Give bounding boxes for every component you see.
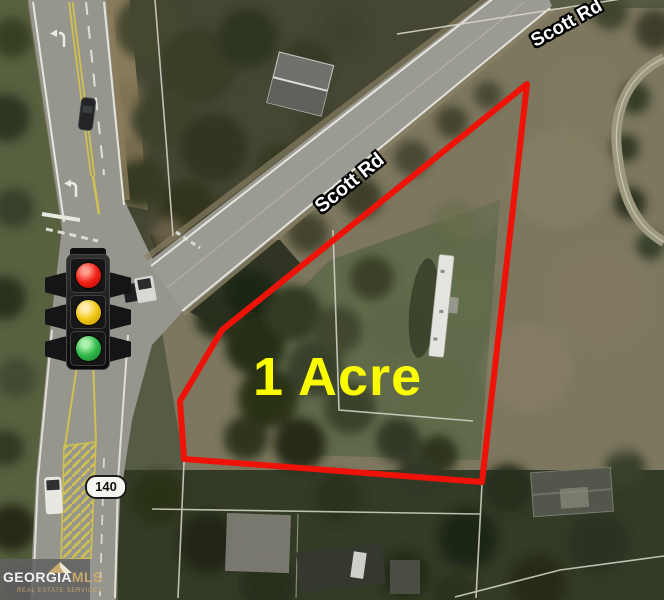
aerial-listing-image: Scott Rd Scott Rd 1 Acre 140 (0, 0, 664, 600)
traffic-light-module (70, 295, 106, 330)
traffic-light-icon (44, 246, 132, 374)
traffic-light-body (66, 254, 110, 370)
mls-brand-text: GEORGIAMLS (3, 569, 103, 585)
mls-tagline: REAL ESTATE SERVICES (17, 588, 102, 594)
traffic-light-visor (45, 272, 67, 298)
traffic-light-visor (45, 304, 67, 330)
brand-georgia: GEORGIA (3, 569, 72, 585)
traffic-light-visor (109, 336, 131, 362)
traffic-light-visor (109, 304, 131, 330)
georgia-mls-watermark: GEORGIAMLS REAL ESTATE SERVICES (0, 559, 90, 600)
route-140-shield: 140 (85, 475, 127, 499)
green-light-icon (75, 335, 102, 362)
acreage-label: 1 Acre (253, 346, 422, 408)
red-light-icon (75, 262, 102, 289)
traffic-light-module (70, 331, 106, 366)
traffic-light-visor (45, 336, 67, 362)
yellow-light-icon (75, 299, 102, 326)
traffic-light-visor (109, 272, 131, 298)
brand-mls: MLS (72, 569, 103, 585)
traffic-light-module (70, 258, 106, 293)
